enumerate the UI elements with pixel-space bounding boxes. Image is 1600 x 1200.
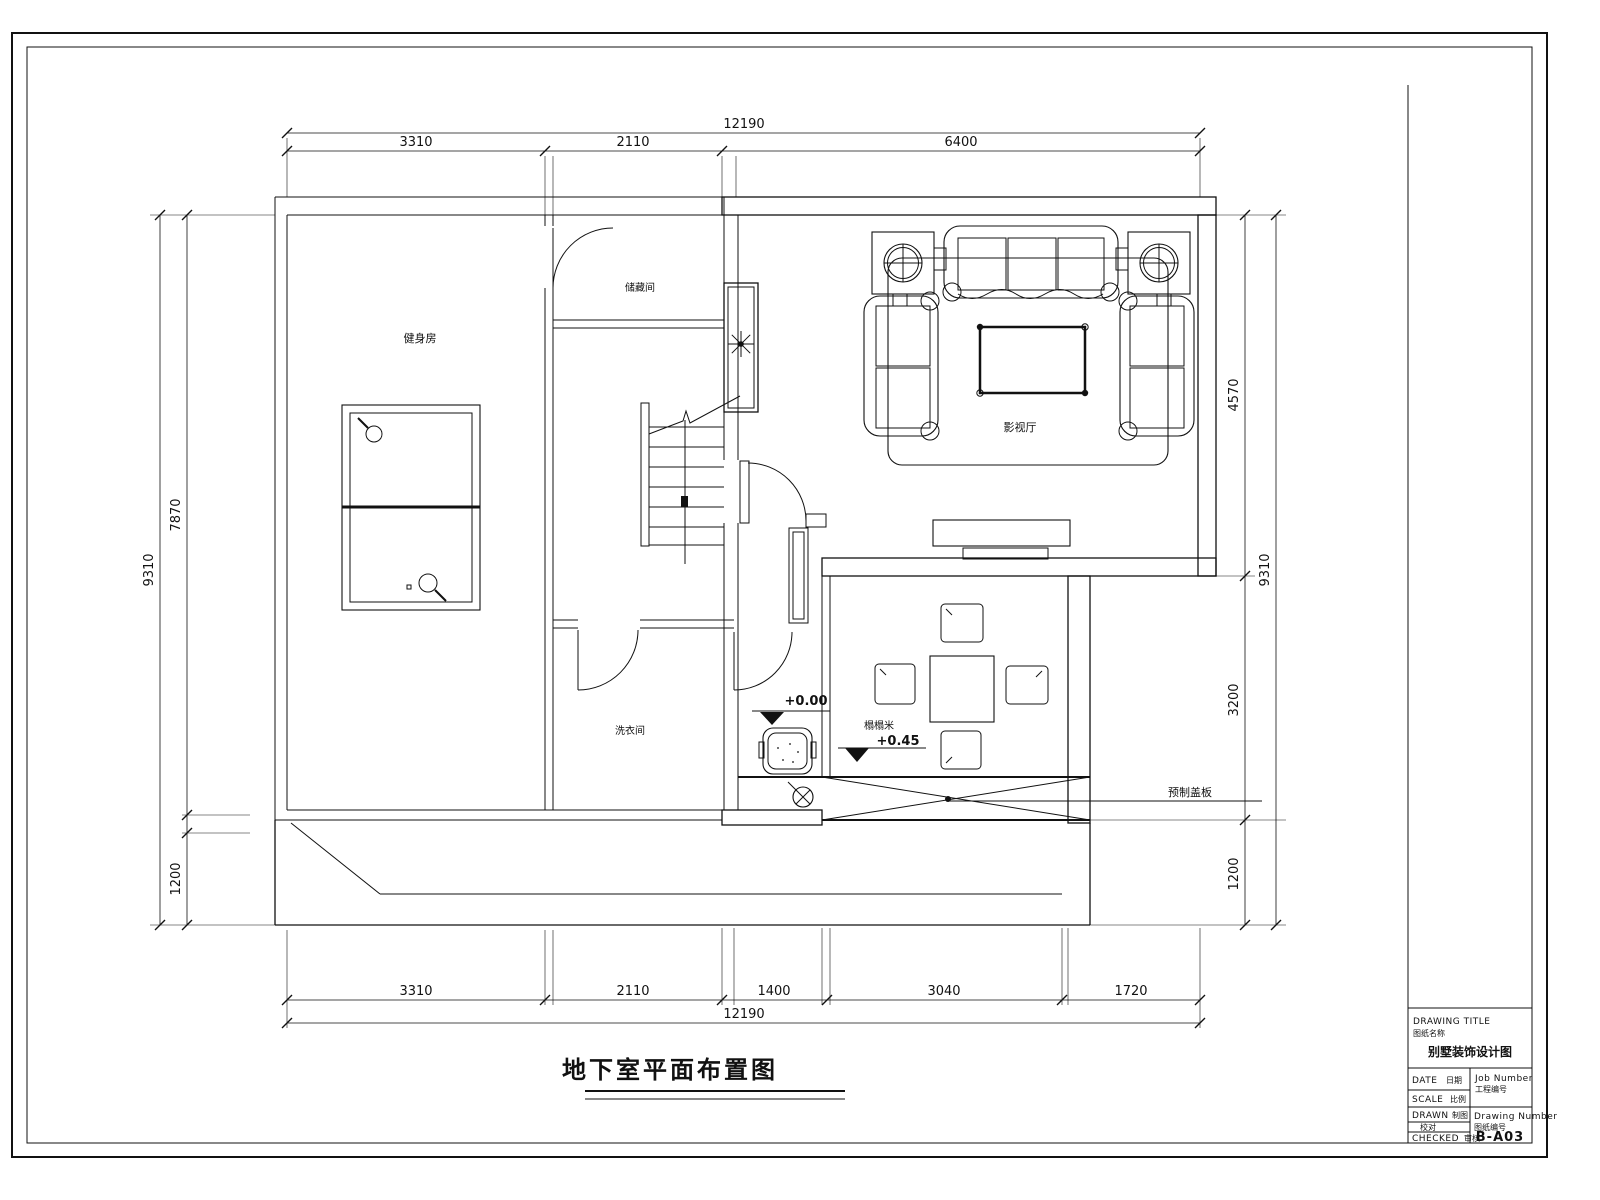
toilet-icon xyxy=(759,728,816,774)
plant-icon xyxy=(728,331,754,357)
paddle-icon xyxy=(407,574,446,601)
sofa-three-seat xyxy=(943,226,1119,301)
dim-right-3: 1200 xyxy=(1227,857,1242,890)
dim-right-overall: 9310 xyxy=(1258,553,1273,586)
titleblock-scale-label: SCALE xyxy=(1412,1095,1443,1105)
dim-bottom-5: 1720 xyxy=(1114,984,1147,999)
room-label-laundry: 洗衣间 xyxy=(615,724,645,737)
level-label-raised: +0.45 xyxy=(877,734,920,749)
floor-plan-canvas: 12190 3310 2110 6400 3310 2110 1400 3040… xyxy=(0,0,1600,1200)
floor-drain-icon xyxy=(788,782,813,807)
room-label-storage: 储藏间 xyxy=(625,281,655,294)
sofa-right xyxy=(1119,292,1194,440)
tatami-area xyxy=(838,604,1048,769)
drawing-title: 地下室平面布置图 xyxy=(562,1056,778,1084)
coffee-table xyxy=(977,324,1088,396)
sofa-left xyxy=(864,292,939,440)
dim-bottom-3: 1400 xyxy=(757,984,790,999)
cover-note-label: 预制盖板 xyxy=(1168,785,1212,799)
dim-bottom-1: 3310 xyxy=(399,984,432,999)
room-label-theater: 影视厅 xyxy=(1004,420,1037,434)
wall-niche xyxy=(724,283,758,412)
title-block: DRAWING TITLE 图纸名称 别墅装饰设计图 DATE 日期 SCALE… xyxy=(1408,1008,1557,1145)
level-marker-ground xyxy=(752,711,830,725)
tatami-table xyxy=(930,656,994,722)
cushion xyxy=(875,664,915,704)
table-tennis-table xyxy=(342,405,480,610)
room-label-tatami: 榻榻米 xyxy=(864,719,894,732)
dim-right-1: 4570 xyxy=(1227,378,1242,411)
door-panel xyxy=(789,528,808,623)
doors xyxy=(553,228,808,690)
dim-right-2: 3200 xyxy=(1227,683,1242,716)
dim-top-1: 3310 xyxy=(399,135,432,150)
titleblock-drawing-number: B-A03 xyxy=(1476,1130,1524,1145)
dim-top-overall: 12190 xyxy=(723,117,764,132)
titleblock-checked-label: CHECKED xyxy=(1412,1134,1459,1144)
dim-chain-left: 9310 7870 1200 xyxy=(142,210,275,930)
titleblock-drawing-number-label: Drawing Number xyxy=(1474,1112,1557,1122)
storage-door xyxy=(553,228,613,288)
titleblock-date-cn: 日期 xyxy=(1446,1076,1462,1085)
titleblock-drawing-title-cn: 图纸名称 xyxy=(1413,1028,1445,1038)
dim-top-2: 2110 xyxy=(616,135,649,150)
dim-top-3: 6400 xyxy=(944,135,977,150)
level-marker-raised xyxy=(838,748,926,762)
cushion xyxy=(941,731,981,769)
ramp-area xyxy=(275,820,1090,925)
cushion xyxy=(941,604,983,642)
titleblock-drawn-cn: 制图 xyxy=(1452,1110,1468,1120)
dimensions: 12190 3310 2110 6400 3310 2110 1400 3040… xyxy=(142,117,1286,1028)
dim-left-2: 1200 xyxy=(169,862,184,895)
titleblock-scale-cn: 比例 xyxy=(1450,1094,1466,1104)
stairs xyxy=(641,396,740,564)
hall-door xyxy=(734,632,792,690)
side-table-left xyxy=(872,232,934,294)
drawing-title-group: 地下室平面布置图 xyxy=(562,1056,845,1099)
tv-cabinet xyxy=(933,520,1070,559)
bathroom xyxy=(752,711,830,807)
dim-chain-top: 12190 3310 2110 6400 xyxy=(282,117,1205,215)
dim-bottom-4: 3040 xyxy=(927,984,960,999)
dim-bottom-2: 2110 xyxy=(616,984,649,999)
titleblock-date-label: DATE xyxy=(1412,1076,1437,1086)
paddle-icon xyxy=(358,418,382,442)
level-label-ground: +0.00 xyxy=(785,694,828,709)
dim-left-1: 7870 xyxy=(169,498,184,531)
dim-chain-bottom: 3310 2110 1400 3040 1720 12190 xyxy=(282,928,1205,1028)
titleblock-drawing-title-en: DRAWING TITLE xyxy=(1413,1017,1490,1027)
titleblock-project-name: 别墅装饰设计图 xyxy=(1427,1044,1512,1059)
titleblock-drawn-label: DRAWN xyxy=(1412,1111,1449,1121)
dim-chain-right: 4570 3200 1200 9310 xyxy=(1090,210,1286,930)
titleblock-job-number-cn: 工程编号 xyxy=(1475,1084,1507,1094)
drawing-sheet: 12190 3310 2110 6400 3310 2110 1400 3040… xyxy=(0,0,1600,1200)
living-room-furniture xyxy=(864,226,1194,559)
cushion xyxy=(1006,666,1048,704)
dim-bottom-overall: 12190 xyxy=(723,1007,764,1022)
living-room-door xyxy=(740,461,806,523)
side-table-right xyxy=(1128,232,1190,294)
titleblock-job-number-label: Job Number xyxy=(1474,1074,1533,1084)
dim-left-overall: 9310 xyxy=(142,553,157,586)
room-label-gym: 健身房 xyxy=(404,331,437,345)
titleblock-check-cn: 校对 xyxy=(1420,1122,1436,1132)
laundry-door xyxy=(578,630,638,690)
